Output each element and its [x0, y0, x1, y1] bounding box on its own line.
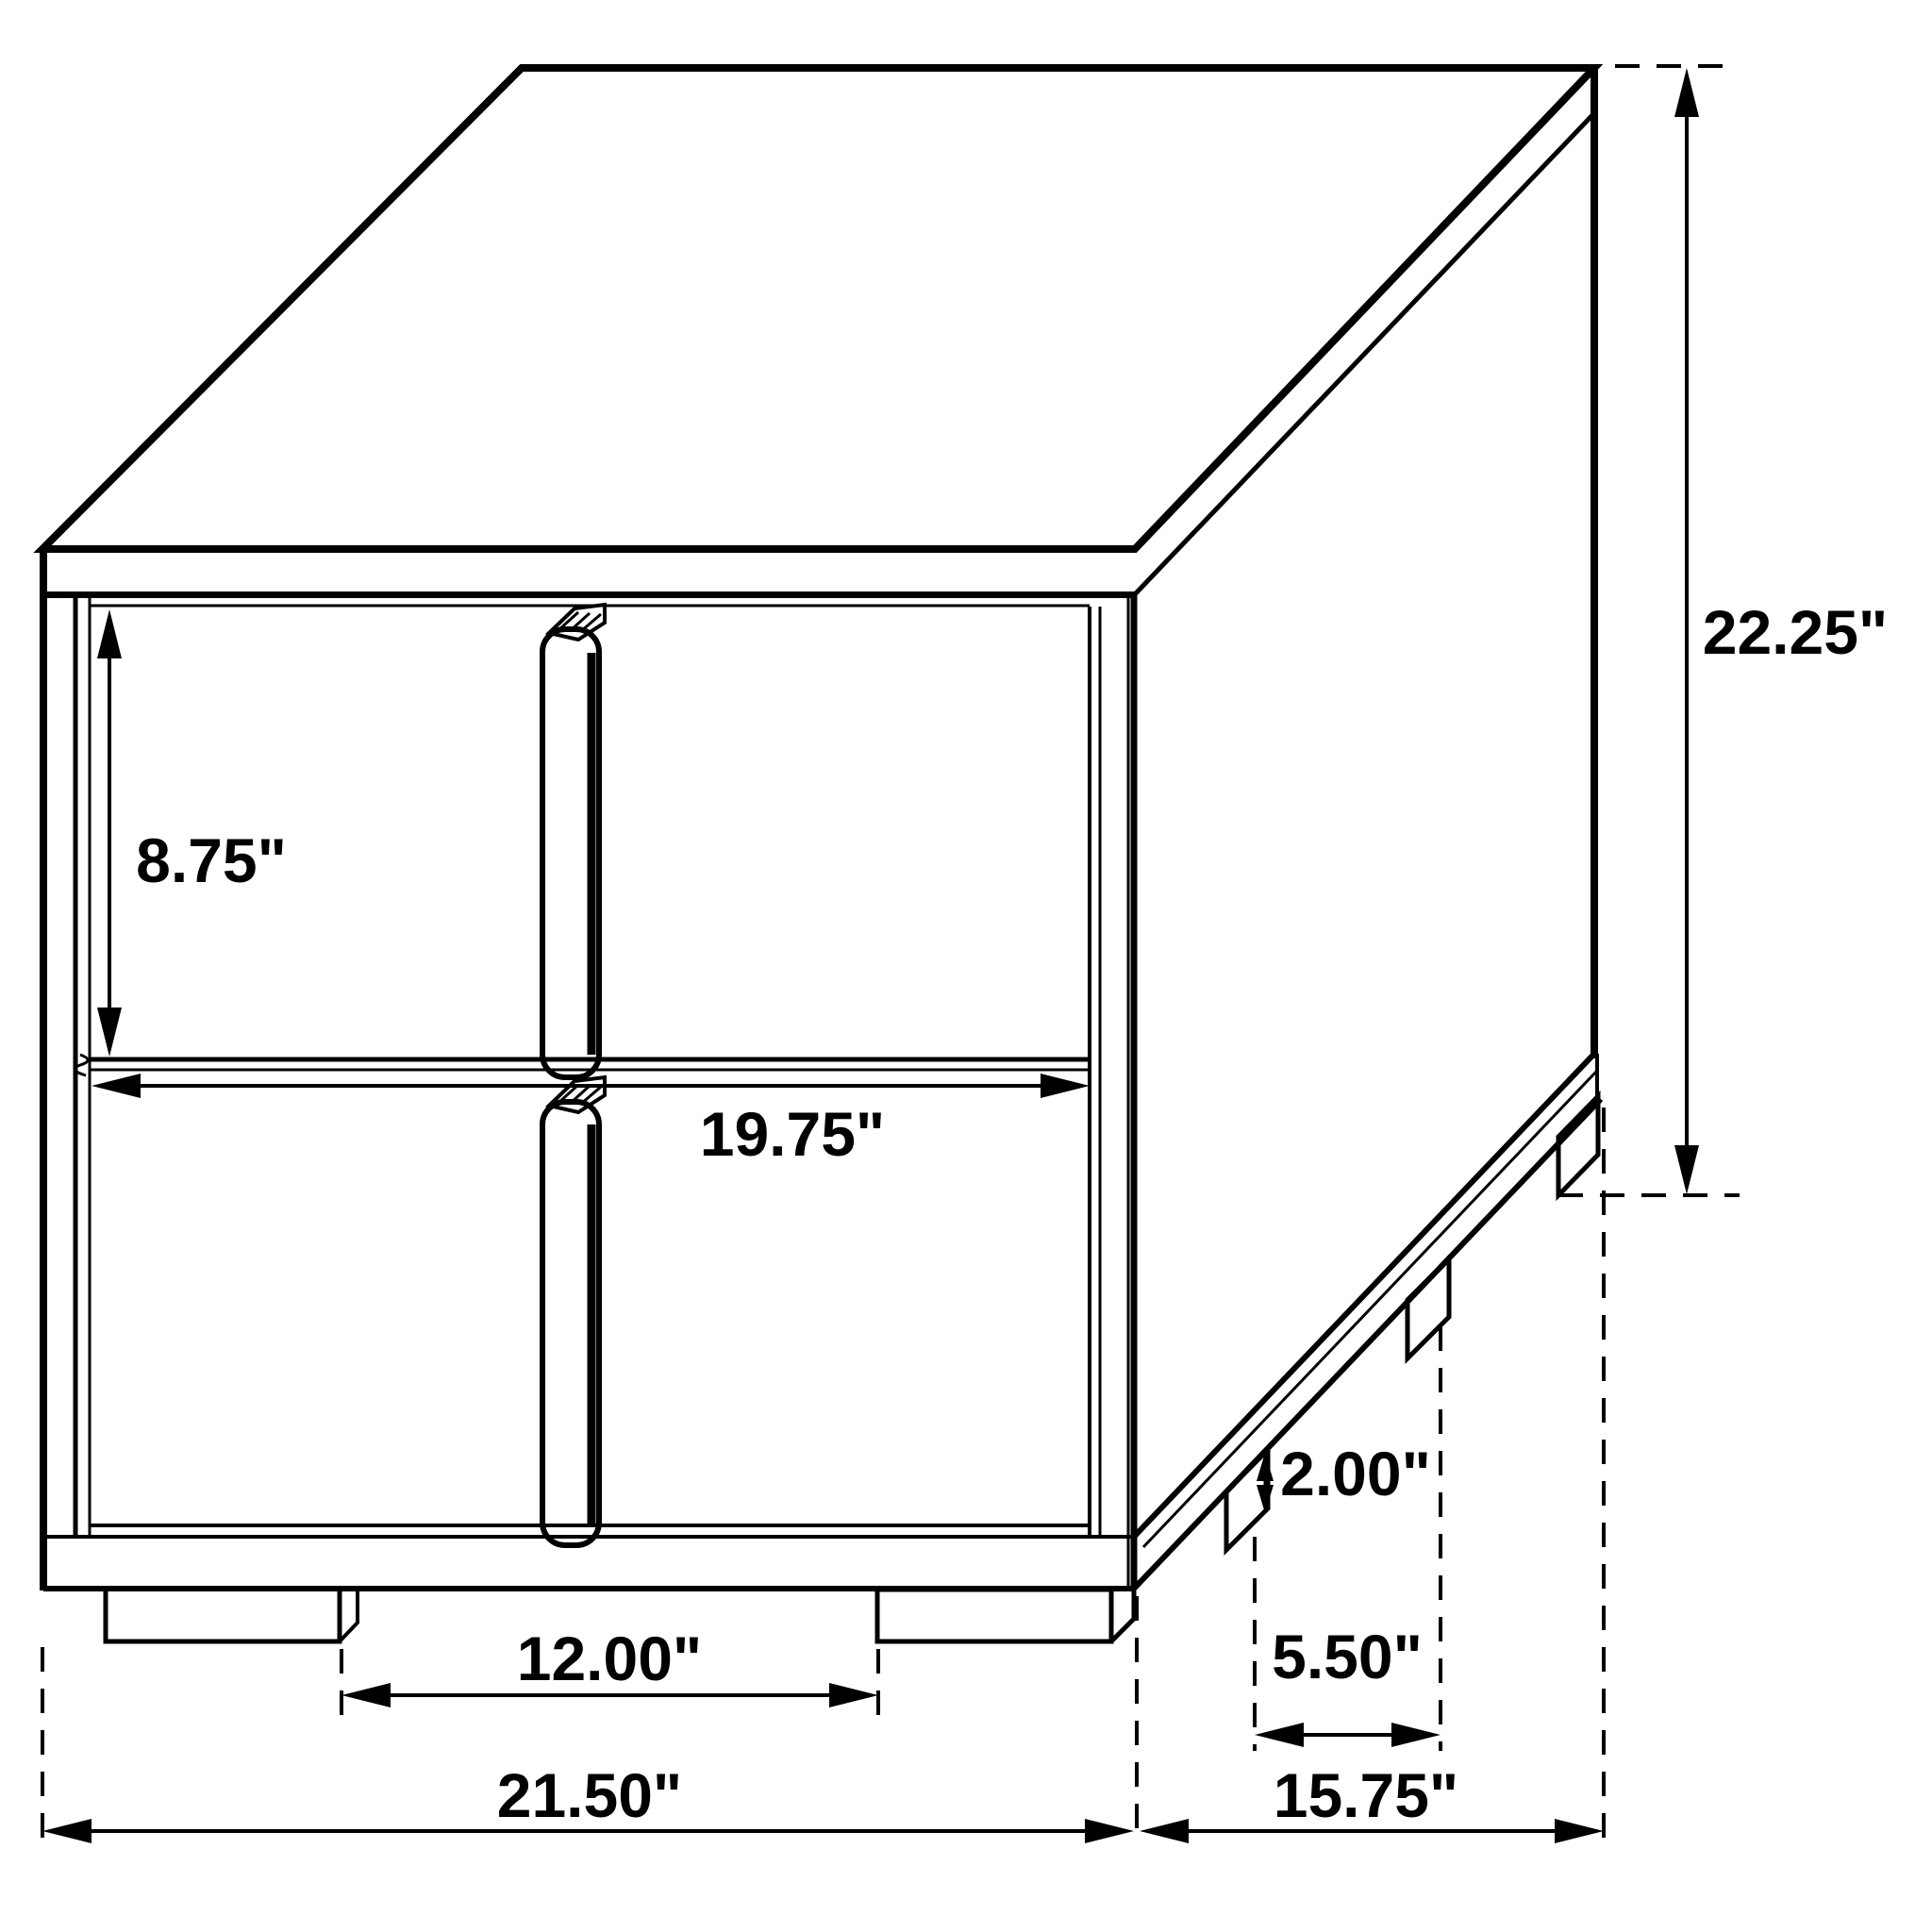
dimension-overall-depth: 15.75" — [1140, 1760, 1604, 1843]
arrow-left-icon — [42, 1819, 92, 1843]
dim-label-foot-height: 2.00" — [1280, 1439, 1431, 1508]
top-slab-right-bottom-edge — [1135, 113, 1594, 594]
dim-label-overall-depth: 15.75" — [1274, 1760, 1458, 1830]
drawer-handles — [542, 605, 605, 1545]
dim-label-side-feet-spacing: 5.50" — [1272, 1622, 1423, 1691]
dimension-front-feet-spacing: 12.00" — [341, 1624, 878, 1707]
arrow-right-icon — [1391, 1723, 1441, 1747]
arrow-left-icon — [341, 1683, 391, 1707]
dim-label-drawer-width: 19.75" — [700, 1099, 885, 1169]
dimension-upper-drawer-height: 8.75" — [97, 609, 287, 1057]
front-left-foot-bevel — [340, 1589, 358, 1641]
arrow-up-icon — [97, 609, 122, 658]
upper-handle-bracket — [549, 605, 605, 640]
arrow-up-icon — [1674, 68, 1699, 117]
arrow-down-icon — [97, 1008, 122, 1057]
arrow-left-icon — [1255, 1723, 1304, 1747]
arrow-right-icon — [829, 1683, 878, 1707]
dimension-side-feet-spacing: 5.50" — [1255, 1622, 1441, 1747]
side-plinth-bottom-edge — [1134, 1099, 1601, 1589]
front-left-foot — [106, 1589, 340, 1641]
side-foot-middle — [1407, 1258, 1449, 1358]
dimension-overall-width: 21.50" — [42, 1760, 1134, 1843]
arrow-right-icon — [1555, 1819, 1604, 1843]
dim-label-overall-width: 21.50" — [497, 1760, 682, 1830]
nightstand-dimension-drawing: 8.75" 19.75" 22.25" 2.00" 12.00" 5.50" 2… — [0, 0, 1932, 1932]
dim-label-overall-height: 22.25" — [1703, 597, 1888, 667]
arrow-right-icon — [1041, 1074, 1090, 1098]
dimension-overall-height: 22.25" — [1674, 68, 1888, 1194]
arrow-down-icon — [1257, 1485, 1274, 1513]
front-right-foot — [877, 1590, 1111, 1641]
dim-label-upper-drawer-height: 8.75" — [136, 825, 287, 895]
drawing-canvas: 8.75" 19.75" 22.25" 2.00" 12.00" 5.50" 2… — [0, 0, 1932, 1932]
arrow-down-icon — [1674, 1145, 1699, 1194]
arrow-left-icon — [1140, 1819, 1189, 1843]
top-face — [42, 68, 1594, 549]
lower-handle-bracket — [549, 1077, 605, 1112]
front-right-foot-bevel — [1111, 1589, 1134, 1641]
arrow-right-icon — [1085, 1819, 1134, 1843]
extension-lines — [42, 66, 1740, 1845]
dimension-foot-height: 2.00" — [1257, 1439, 1431, 1513]
arrow-left-icon — [92, 1074, 141, 1098]
feet — [106, 1096, 1598, 1641]
dim-label-front-feet-spacing: 12.00" — [517, 1624, 702, 1693]
